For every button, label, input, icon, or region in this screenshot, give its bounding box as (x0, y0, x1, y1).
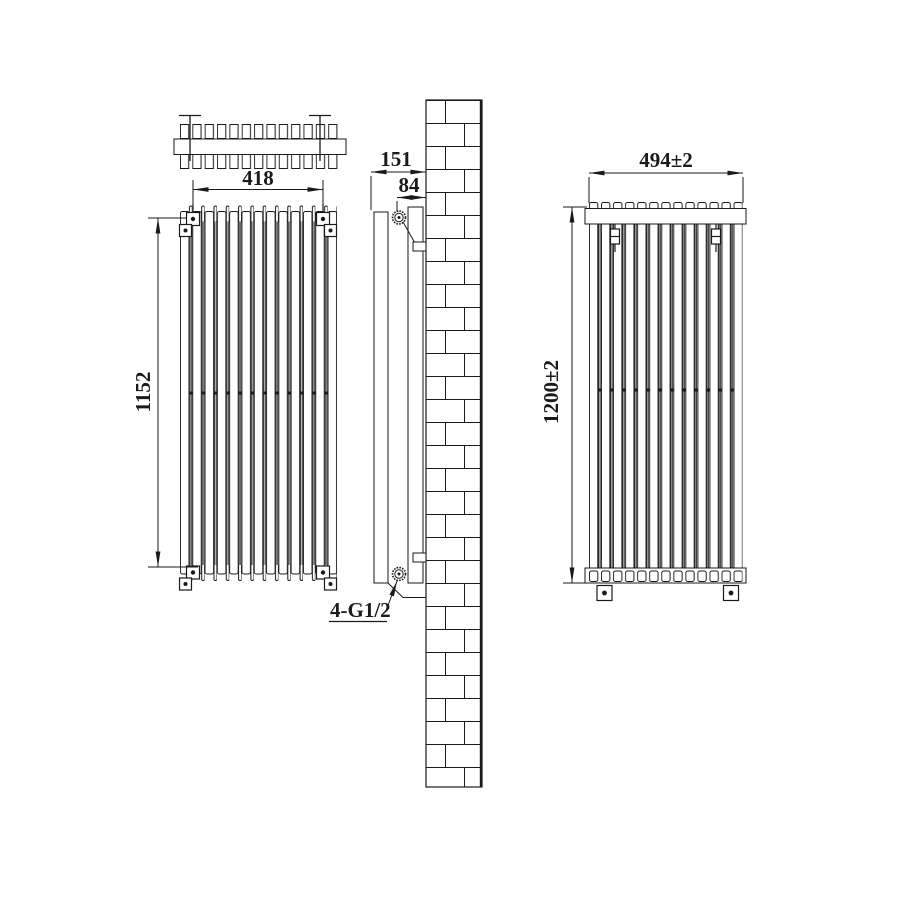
drawing-svg: 418 1152 (0, 0, 900, 900)
dim-label-1200: 1200±2 (539, 360, 563, 424)
dim-label-418: 418 (242, 166, 274, 190)
top-view (174, 116, 346, 170)
dim-label-494: 494±2 (639, 148, 693, 172)
dim-label-84: 84 (399, 173, 421, 197)
front-view-left: 418 1152 (131, 166, 337, 590)
dim-label-151: 151 (380, 147, 412, 171)
side-view: 151 84 4-G1/2 (329, 100, 482, 787)
front-view-right: 494±2 1200±2 (539, 148, 746, 601)
brick-wall (426, 100, 482, 787)
connection-label: 4-G1/2 (330, 598, 391, 622)
radiator-technical-drawing: 418 1152 (0, 0, 900, 900)
dim-label-1152: 1152 (131, 372, 155, 413)
